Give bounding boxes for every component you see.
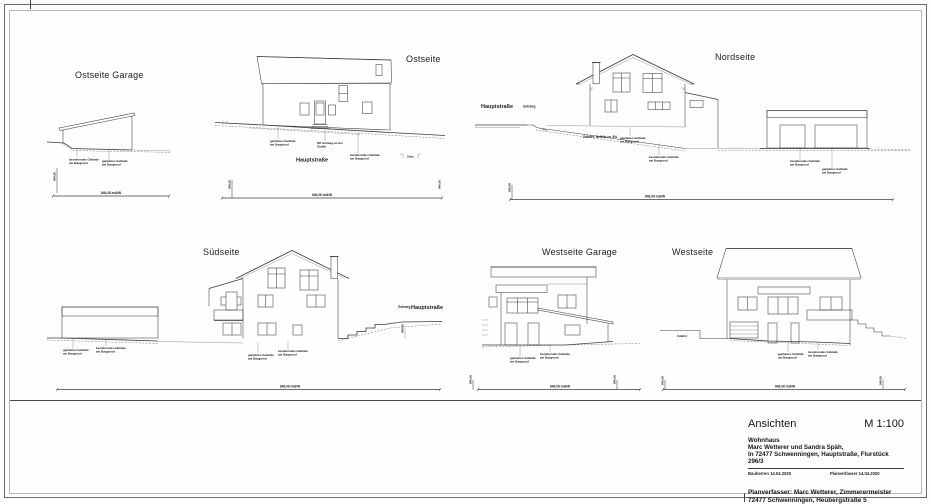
datum-label: 846,08 müNN	[645, 195, 666, 199]
elevation-westseite-garage: Westseite Garage	[465, 240, 655, 395]
terrain-label-existing-2: am Baugrund	[278, 352, 297, 356]
sidewalk-label: Gehweg	[398, 305, 410, 309]
level-marker: 846,08	[228, 180, 232, 189]
fence-label: Zaun	[407, 155, 414, 159]
terrain-label-existing-garage-2: am Baugrund	[96, 349, 115, 353]
curb-label-2: Straße	[317, 144, 326, 148]
street-label: Hauptstraße	[411, 305, 443, 311]
terrain-label-existing-garage-2: am Baugrund	[790, 162, 809, 166]
terrain-label-existing-2: am Baugrund	[350, 156, 369, 160]
terrain-label-existing-2: am Baugrund	[649, 158, 668, 162]
terrain-label-planned-garage-2: am Baugrund	[822, 170, 841, 174]
elevation-nordseite: Nordseite	[470, 35, 915, 210]
elevation-westseite: Westseite	[655, 240, 915, 395]
datum-label: 846,08 müNN	[101, 191, 122, 195]
driveway-label: Zufahrt	[677, 334, 687, 338]
terrain-label-planned-2: am Baugrund	[510, 359, 529, 363]
level-marker: 846,08	[53, 172, 57, 181]
driveway-label: Zufahrt, Gefälle ca. 8%	[583, 135, 617, 139]
view-title-westseite-garage: Westseite Garage	[542, 247, 617, 257]
level-marker-right: 846,08	[879, 376, 883, 385]
terrain-label-planned-2: am Baugrund	[102, 162, 121, 166]
datum-label: 846,08 müNN	[775, 385, 796, 389]
building-type: Wohnhaus	[748, 437, 904, 444]
level-marker-street: 846,08	[401, 324, 405, 333]
plan-sheet: Ostseite Garage bestehendes Gelände am B…	[0, 0, 931, 502]
drawing-title: Ansichten	[748, 418, 796, 430]
garage-west-drawing	[473, 267, 641, 391]
title-block-rule	[748, 468, 904, 469]
author-name: Planverfasser: Marc Wetterer, Zimmererme…	[748, 489, 904, 497]
level-marker-right: 846,08	[613, 375, 617, 384]
street-label: Hauptstraße	[296, 158, 328, 164]
datum-label: 846,08 müNN	[312, 193, 333, 197]
client-name: Marc Wetterer und Sandra Späh,	[748, 444, 904, 451]
terrain-label-existing-2: am Baugrund	[808, 353, 827, 357]
title-block-separator	[10, 400, 921, 401]
level-marker-right: 846,08	[438, 180, 442, 189]
terrain-label-planned-2: am Baugrund	[248, 356, 267, 360]
terrain-label-planned-2: am Baugrund	[620, 139, 639, 143]
title-block: Ansichten M 1:100 Wohnhaus Marc Wetterer…	[740, 404, 910, 496]
level-marker: 846,08	[508, 183, 512, 192]
house-east-drawing	[215, 57, 445, 200]
elevation-suedseite: Südseite	[30, 240, 455, 395]
elevation-ostseite: Ostseite	[210, 40, 465, 205]
terrain-label-planned-2: am Baugrund	[270, 142, 289, 146]
street-label: Hauptstraße	[481, 104, 513, 110]
level-marker-left: 846,08	[469, 375, 473, 384]
elevation-ostseite-garage: Ostseite Garage bestehendes Gelände am B…	[35, 60, 195, 200]
drawing-scale: M 1:100	[864, 418, 904, 430]
terrain-label-planned-2: am Baugrund	[778, 355, 797, 359]
author-address: 72477 Schwenningen, Heubergstraße 5	[748, 497, 904, 504]
signature-author: Planverfasser 14.04.2020	[830, 471, 880, 476]
house-south-drawing	[47, 251, 442, 392]
fold-mark-top	[30, 0, 31, 9]
sidewalk-label: Gehweg	[523, 105, 535, 109]
datum-label: 846,08 müNN	[280, 385, 301, 389]
view-title-suedseite: Südseite	[203, 247, 240, 257]
level-marker-left: 846,08	[661, 376, 665, 385]
signature-client: Bauherren 14.04.2020	[748, 471, 830, 476]
house-west-drawing	[660, 249, 907, 392]
terrain-label-existing-2: am Baugrund	[540, 355, 559, 359]
datum-label: 846,08 müNN	[550, 385, 571, 389]
house-north-drawing	[475, 55, 910, 202]
site-address: In 72477 Schwenningen, Hauptstraße, Flur…	[748, 451, 904, 465]
view-title-westseite: Westseite	[672, 247, 713, 257]
terrain-label-planned-garage-2: am Baugrund	[63, 351, 82, 355]
garage-side-drawing	[47, 113, 171, 198]
view-title-ostseite: Ostseite	[406, 54, 441, 64]
terrain-label-existing-2: am Baugrund	[69, 161, 88, 165]
view-title-ostseite-garage: Ostseite Garage	[75, 70, 144, 80]
view-title-nordseite: Nordseite	[715, 52, 755, 62]
